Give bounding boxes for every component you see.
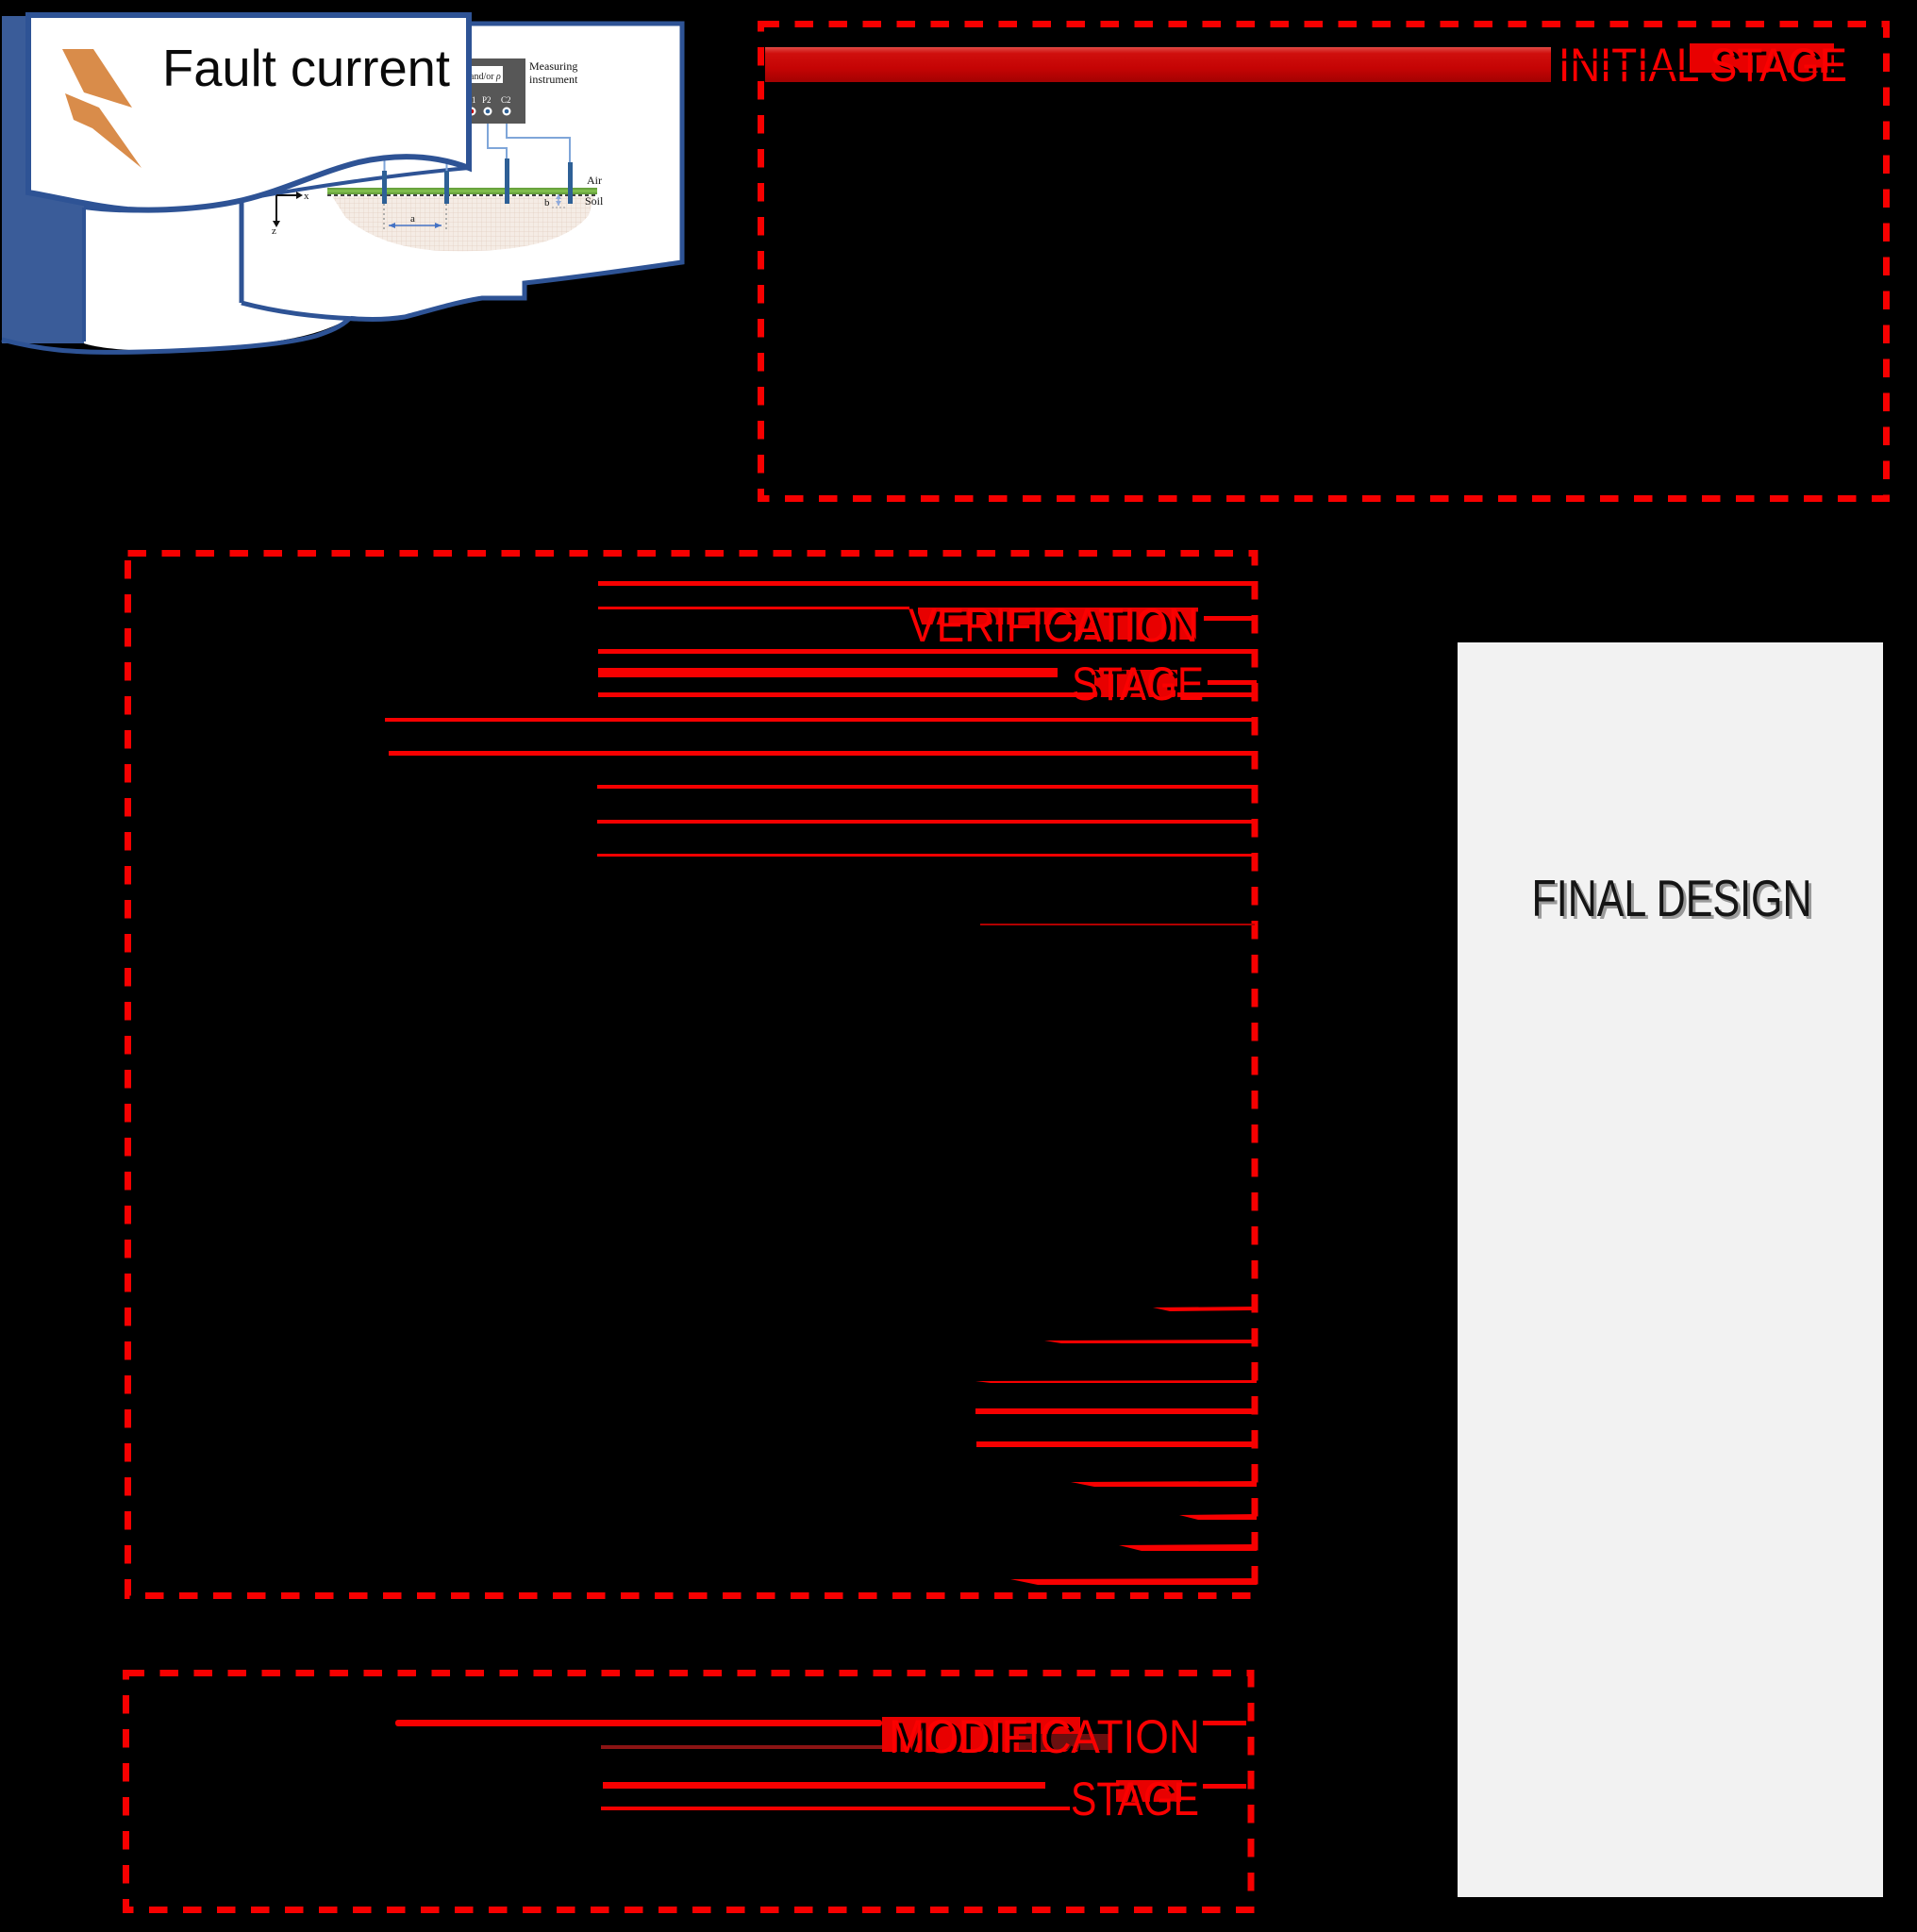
- svg-text:Measuring: Measuring: [529, 59, 577, 73]
- svg-text:STAGE: STAGE: [1072, 658, 1204, 710]
- svg-text:a: a: [410, 213, 415, 225]
- svg-text:instrument: instrument: [529, 73, 578, 86]
- svg-text:Air: Air: [587, 174, 602, 187]
- svg-text:FINAL DESIGN: FINAL DESIGN: [1532, 869, 1812, 927]
- svg-text:and/or ρ: and/or ρ: [470, 72, 501, 82]
- svg-text:C2: C2: [501, 95, 511, 105]
- svg-text:x: x: [304, 191, 309, 202]
- svg-text:P2: P2: [482, 95, 492, 105]
- svg-text:b: b: [544, 197, 550, 208]
- svg-text:z: z: [272, 225, 276, 237]
- svg-text:Soil: Soil: [585, 194, 604, 208]
- svg-text:MODIFICATION: MODIFICATION: [889, 1710, 1200, 1763]
- svg-text:Fault current: Fault current: [162, 39, 450, 97]
- svg-text:VERIFICATION: VERIFICATION: [908, 599, 1198, 652]
- svg-text:STAGE: STAGE: [1071, 1773, 1199, 1825]
- svg-text:1: 1: [472, 95, 476, 105]
- svg-text:INITIAL STAGE: INITIAL STAGE: [1559, 39, 1847, 92]
